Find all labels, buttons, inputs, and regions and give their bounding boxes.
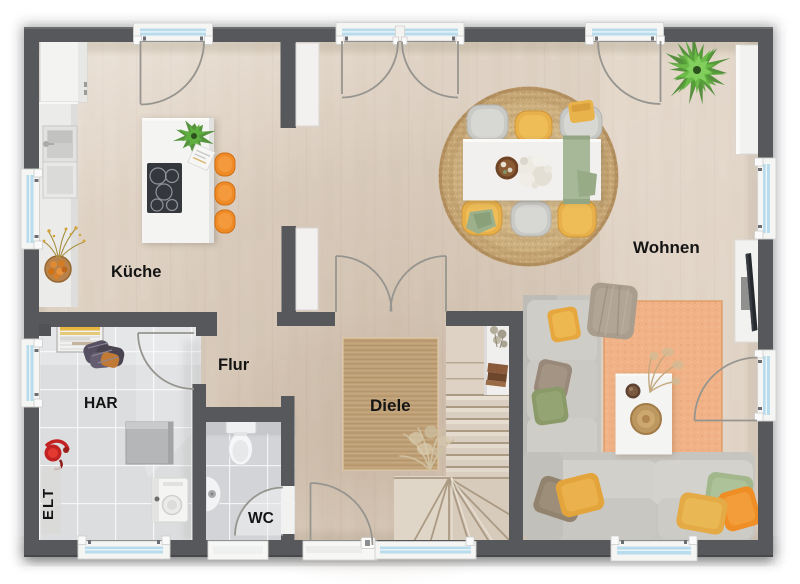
svg-text:Küche: Küche: [111, 263, 161, 281]
svg-text:ELT: ELT: [40, 487, 57, 520]
svg-text:Wohnen: Wohnen: [633, 238, 700, 257]
svg-text:Flur: Flur: [218, 356, 250, 374]
svg-text:HAR: HAR: [84, 395, 118, 412]
svg-text:WC: WC: [248, 510, 274, 527]
svg-text:Diele: Diele: [370, 396, 411, 415]
